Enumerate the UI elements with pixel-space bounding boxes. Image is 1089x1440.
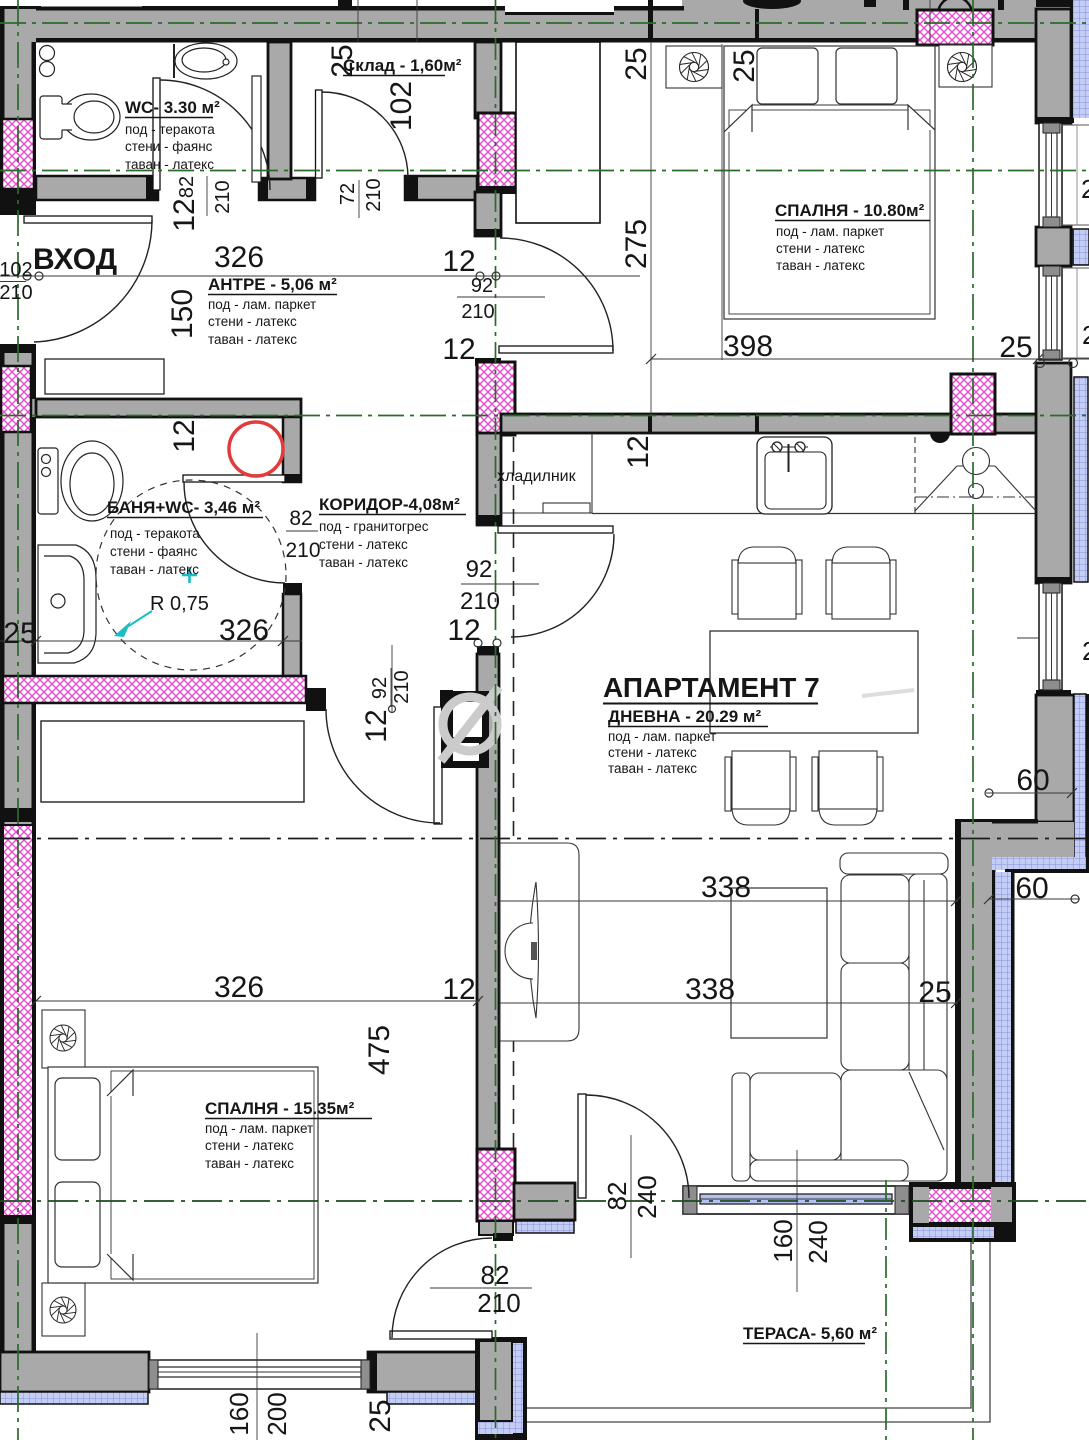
svg-text:12: 12: [442, 245, 475, 278]
svg-text:2: 2: [1081, 174, 1089, 204]
svg-text:под - лам. паркет: под - лам. паркет: [608, 729, 716, 744]
svg-text:ТЕРАСА- 5,60 м²: ТЕРАСА- 5,60 м²: [743, 1324, 877, 1343]
svg-text:210: 210: [363, 178, 385, 211]
svg-text:72: 72: [337, 183, 359, 205]
svg-text:210: 210: [0, 282, 33, 304]
svg-text:25: 25: [918, 976, 951, 1009]
svg-text:таван - латекс: таван - латекс: [110, 562, 199, 577]
svg-text:82: 82: [289, 507, 312, 530]
svg-text:338: 338: [701, 871, 751, 904]
svg-text:стени - латекс: стени - латекс: [319, 537, 408, 552]
svg-text:КОРИДОР-4,08м²: КОРИДОР-4,08м²: [319, 495, 460, 514]
svg-text:стени - латекс: стени - латекс: [208, 314, 297, 329]
svg-text:210: 210: [461, 301, 494, 323]
svg-text:стени - латекс: стени - латекс: [205, 1138, 294, 1153]
svg-text:475: 475: [363, 1025, 396, 1075]
svg-text:12: 12: [442, 973, 475, 1006]
svg-text:82: 82: [602, 1182, 632, 1211]
svg-text:210: 210: [460, 588, 500, 615]
svg-text:стени - латекс: стени - латекс: [608, 745, 697, 760]
svg-text:таван - латекс: таван - латекс: [125, 157, 214, 172]
svg-text:12: 12: [360, 709, 393, 742]
svg-text:25: 25: [3, 617, 36, 650]
svg-text:таван - латекс: таван - латекс: [776, 258, 865, 273]
svg-text:12: 12: [622, 435, 655, 468]
svg-text:стени - фаянс: стени - фаянс: [110, 544, 198, 559]
svg-text:25: 25: [999, 331, 1032, 364]
svg-text:25: 25: [728, 49, 761, 82]
svg-text:210: 210: [391, 670, 413, 703]
svg-text:326: 326: [214, 971, 264, 1004]
svg-text:таван - латекс: таван - латекс: [205, 1156, 294, 1171]
svg-text:275: 275: [620, 219, 653, 269]
svg-text:326: 326: [219, 614, 269, 647]
svg-text:326: 326: [214, 241, 264, 274]
svg-text:стени - фаянс: стени - фаянс: [125, 139, 213, 154]
svg-text:92: 92: [369, 677, 391, 699]
svg-text:под - лам. паркет: под - лам. паркет: [776, 224, 884, 239]
svg-text:ДНЕВНА - 20.29 м²: ДНЕВНА - 20.29 м²: [608, 707, 762, 726]
svg-text:12: 12: [447, 614, 480, 647]
svg-text:240: 240: [803, 1220, 833, 1263]
svg-text:2: 2: [1082, 320, 1089, 350]
svg-text:под - гранитогрес: под - гранитогрес: [319, 519, 429, 534]
svg-text:таван - латекс: таван - латекс: [319, 555, 408, 570]
svg-text:СПАЛНЯ - 10.80м²: СПАЛНЯ - 10.80м²: [775, 201, 925, 220]
svg-text:БАНЯ+WC- 3,46 м²: БАНЯ+WC- 3,46 м²: [107, 498, 260, 517]
svg-text:82: 82: [481, 1260, 510, 1290]
svg-text:60: 60: [1015, 872, 1048, 905]
svg-text:82: 82: [176, 176, 198, 198]
svg-text:2: 2: [1082, 636, 1089, 666]
svg-text:240: 240: [632, 1175, 662, 1218]
svg-text:12: 12: [442, 333, 475, 366]
svg-text:ВХОД: ВХОД: [33, 243, 117, 276]
svg-text:таван - латекс: таван - латекс: [208, 332, 297, 347]
svg-text:160: 160: [224, 1392, 254, 1435]
svg-text:102: 102: [385, 81, 418, 131]
svg-text:12: 12: [168, 419, 201, 452]
svg-text:СПАЛНЯ - 15.35м²: СПАЛНЯ - 15.35м²: [205, 1099, 355, 1118]
svg-text:210: 210: [477, 1288, 520, 1318]
svg-text:таван - латекс: таван - латекс: [608, 761, 697, 776]
svg-text:25: 25: [620, 47, 653, 80]
svg-text:60: 60: [1016, 764, 1049, 797]
svg-text:210: 210: [285, 539, 320, 562]
svg-text:АПАРТАМЕНТ 7: АПАРТАМЕНТ 7: [603, 672, 820, 703]
svg-text:160: 160: [768, 1219, 798, 1262]
svg-text:Склад - 1,60м²: Склад - 1,60м²: [343, 56, 462, 75]
svg-text:под - лам. паркет: под - лам. паркет: [208, 297, 316, 312]
svg-text:под - теракота: под - теракота: [110, 526, 200, 541]
svg-text:398: 398: [723, 330, 773, 363]
svg-text:210: 210: [212, 180, 234, 213]
svg-text:338: 338: [685, 973, 735, 1006]
svg-text:хладилник: хладилник: [497, 468, 577, 485]
svg-text:12: 12: [168, 198, 201, 231]
svg-text:150: 150: [166, 289, 199, 339]
svg-text:92: 92: [471, 275, 493, 297]
svg-text:200: 200: [262, 1392, 292, 1435]
svg-text:под - лам. паркет: под - лам. паркет: [205, 1121, 313, 1136]
svg-text:АНТРЕ - 5,06 м²: АНТРЕ - 5,06 м²: [208, 275, 337, 294]
svg-text:под - теракота: под - теракота: [125, 122, 215, 137]
svg-text:92: 92: [466, 556, 493, 583]
svg-text:25: 25: [364, 1399, 397, 1432]
svg-text:102: 102: [0, 259, 33, 281]
svg-text:стени - латекс: стени - латекс: [776, 241, 865, 256]
svg-text:R 0,75: R 0,75: [150, 593, 209, 615]
svg-text:WC- 3.30 м²: WC- 3.30 м²: [125, 98, 220, 117]
